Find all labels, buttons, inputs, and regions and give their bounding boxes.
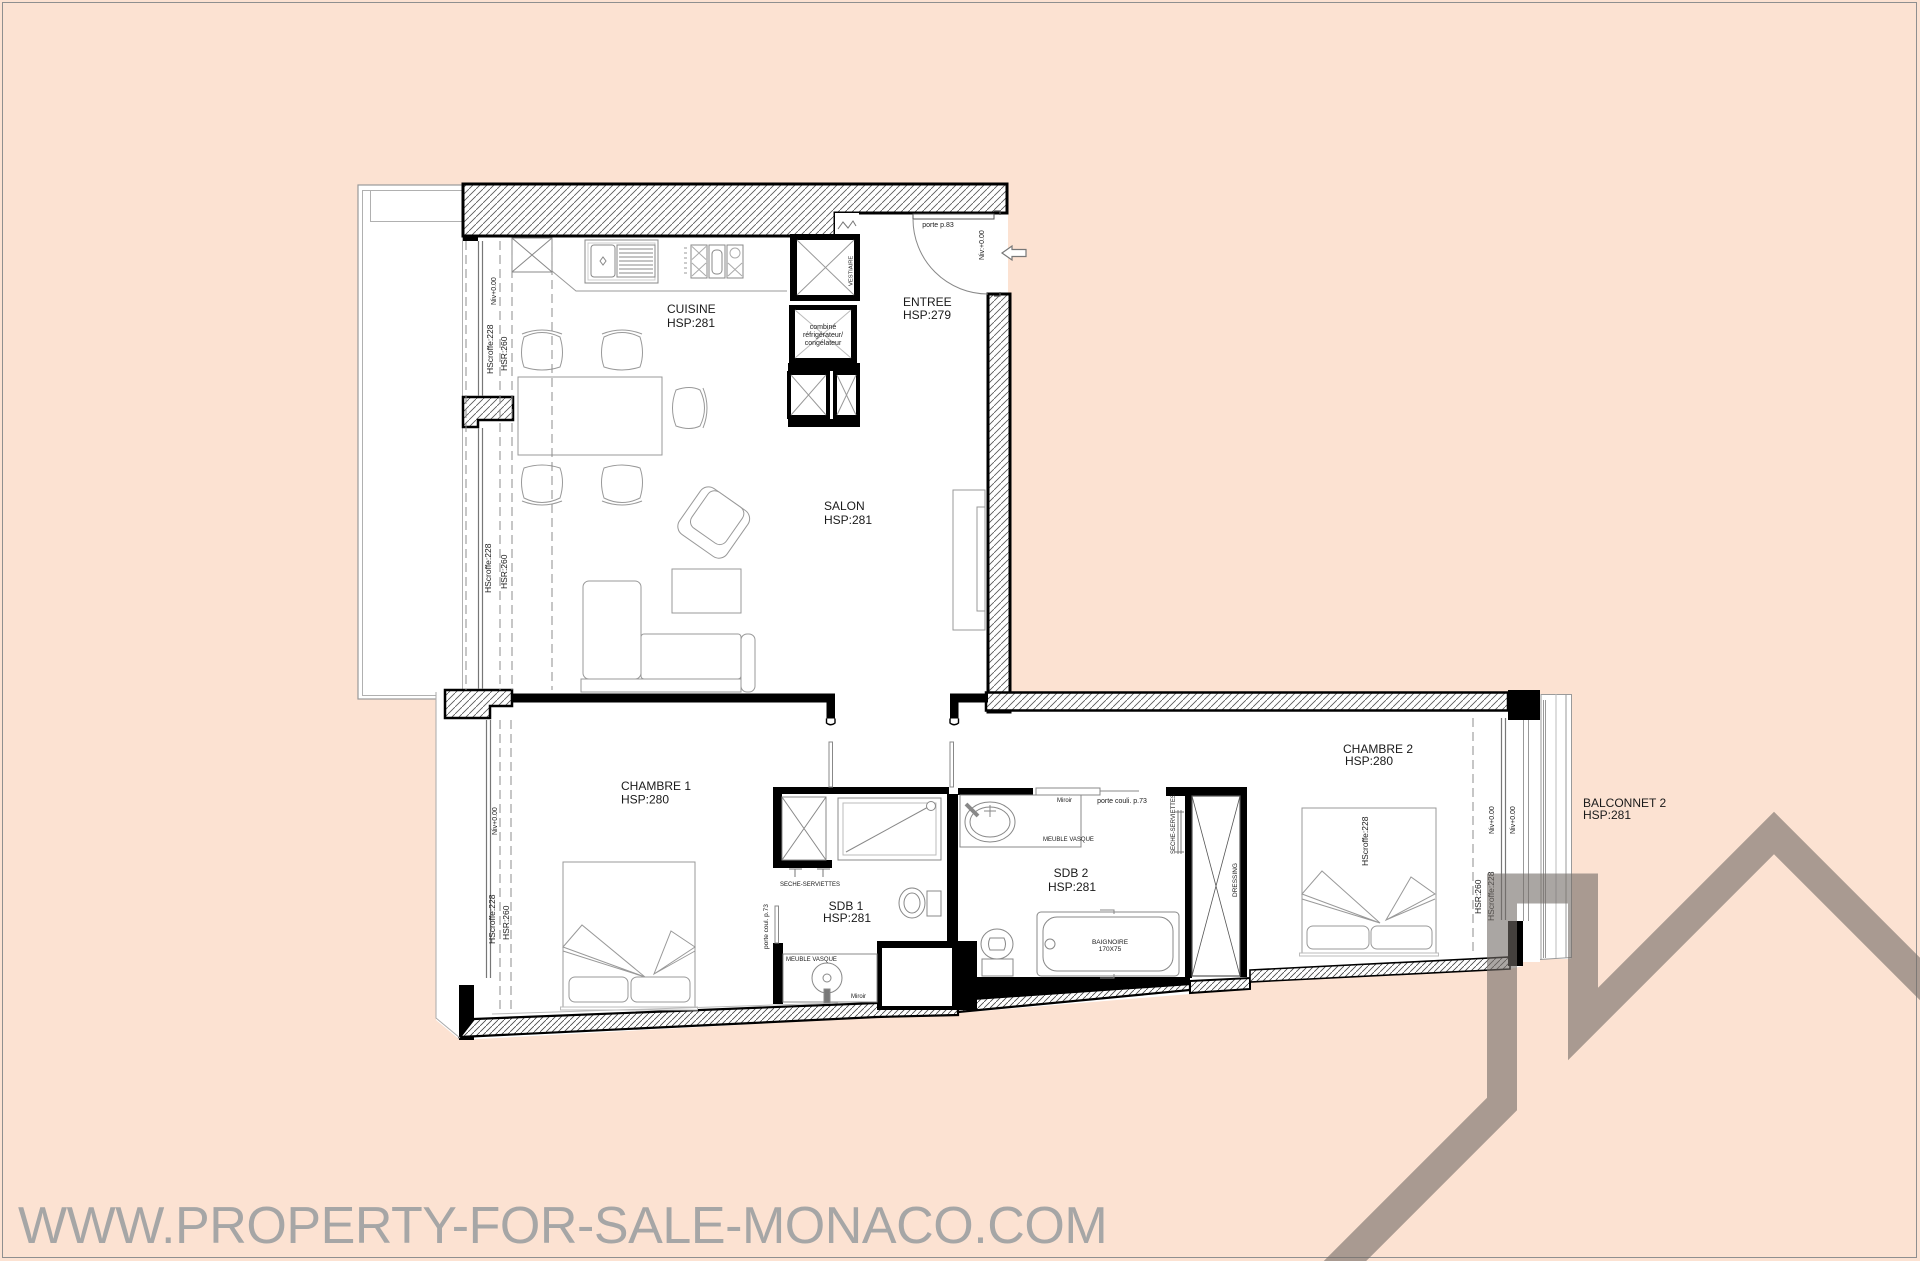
svg-text:HSP:280: HSP:280	[1345, 754, 1393, 768]
svg-text:MEUBLE VASQUE: MEUBLE VASQUE	[1043, 837, 1094, 843]
svg-text:SALON: SALON	[824, 499, 865, 513]
svg-text:Niv:+0.00: Niv:+0.00	[979, 230, 986, 260]
svg-text:CHAMBRE 1: CHAMBRE 1	[621, 779, 691, 793]
svg-text:Niv+0.00: Niv+0.00	[491, 277, 498, 305]
svg-text:HSP:281: HSP:281	[823, 911, 871, 925]
svg-text:SECHE-SERVIETTES: SECHE-SERVIETTES	[780, 882, 840, 888]
svg-text:congélateur: congélateur	[805, 340, 842, 347]
svg-text:HSP:281: HSP:281	[1583, 808, 1631, 822]
svg-text:HSR:260: HSR:260	[499, 336, 509, 371]
svg-text:HSR:260: HSR:260	[501, 905, 511, 940]
svg-text:HScroffe:228: HScroffe:228	[485, 324, 495, 374]
svg-text:170X75: 170X75	[1099, 946, 1122, 953]
svg-text:CUISINE: CUISINE	[667, 302, 716, 316]
svg-text:BAIGNOIRE: BAIGNOIRE	[1092, 939, 1129, 946]
svg-text:Miroir: Miroir	[851, 994, 866, 1000]
svg-text:HScroffe:228: HScroffe:228	[487, 894, 497, 944]
svg-text:porte p.83: porte p.83	[922, 222, 954, 229]
svg-text:HSR:260: HSR:260	[1473, 879, 1483, 914]
svg-text:SDB 2: SDB 2	[1054, 866, 1089, 880]
svg-text:HSP:280: HSP:280	[621, 793, 669, 807]
svg-text:Niv+0.00: Niv+0.00	[492, 807, 499, 835]
svg-text:WWW.PROPERTY-FOR-SALE-MONACO.C: WWW.PROPERTY-FOR-SALE-MONACO.COM	[18, 1197, 1107, 1255]
svg-text:HSR:260: HSR:260	[499, 554, 509, 589]
svg-text:ENTREE: ENTREE	[903, 295, 952, 309]
svg-text:HSP:281: HSP:281	[1048, 880, 1096, 894]
svg-text:Niv+0.00: Niv+0.00	[1489, 806, 1496, 834]
svg-text:MEUBLE VASQUE: MEUBLE VASQUE	[786, 957, 837, 963]
svg-text:HSP:281: HSP:281	[824, 513, 872, 527]
svg-text:HScroffe:228: HScroffe:228	[483, 543, 493, 593]
svg-text:HScroffe:228: HScroffe:228	[1360, 816, 1370, 866]
svg-text:HSP:281: HSP:281	[667, 316, 715, 330]
svg-text:Miroir: Miroir	[1057, 798, 1072, 804]
svg-text:combiné: combiné	[810, 324, 837, 331]
svg-text:réfrigérateur/: réfrigérateur/	[803, 332, 843, 339]
svg-text:porte couli. p.73: porte couli. p.73	[1097, 798, 1147, 805]
svg-text:Niv+0.00: Niv+0.00	[1510, 806, 1517, 834]
svg-text:HSP:279: HSP:279	[903, 308, 951, 322]
svg-text:porte coul. p.73: porte coul. p.73	[763, 904, 770, 949]
svg-text:VESTIAIRE: VESTIAIRE	[849, 256, 855, 286]
svg-text:SECHE-SERVIETTES: SECHE-SERVIETTES	[1171, 794, 1177, 854]
svg-text:DRESSING: DRESSING	[1232, 863, 1239, 897]
